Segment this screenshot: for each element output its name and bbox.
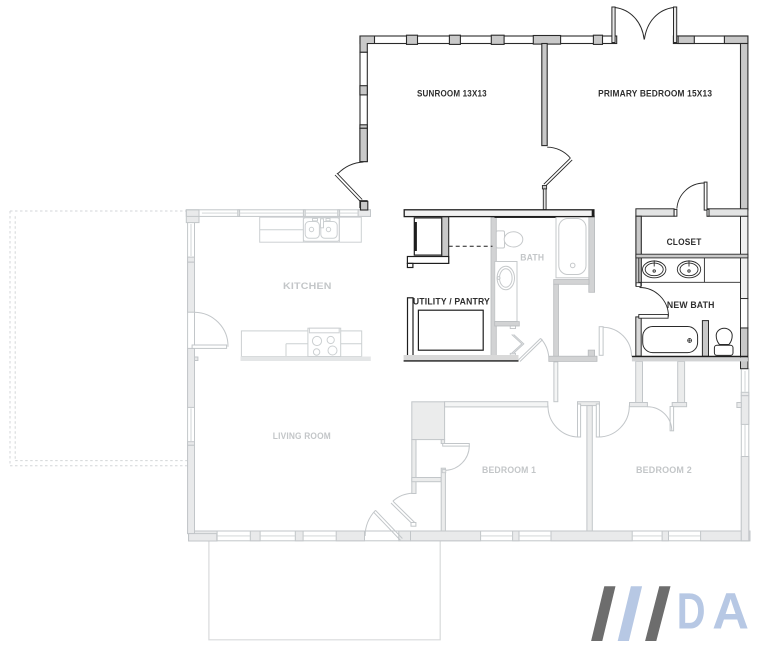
svg-text:UTILITY / PANTRY: UTILITY / PANTRY xyxy=(413,297,491,307)
svg-text:A: A xyxy=(712,583,749,640)
svg-text:LIVING ROOM: LIVING ROOM xyxy=(273,431,331,441)
svg-text:D: D xyxy=(677,583,706,640)
svg-text:CLOSET: CLOSET xyxy=(667,237,702,247)
svg-text:PRIMARY BEDROOM 15X13: PRIMARY BEDROOM 15X13 xyxy=(598,89,712,99)
svg-text:NEW BATH: NEW BATH xyxy=(667,300,715,310)
svg-text:SUNROOM 13X13: SUNROOM 13X13 xyxy=(417,89,487,99)
svg-text:BATH: BATH xyxy=(520,253,544,263)
svg-text:BEDROOM 2: BEDROOM 2 xyxy=(636,465,692,475)
svg-text:KITCHEN: KITCHEN xyxy=(283,281,332,291)
svg-text:BEDROOM 1: BEDROOM 1 xyxy=(482,465,536,475)
